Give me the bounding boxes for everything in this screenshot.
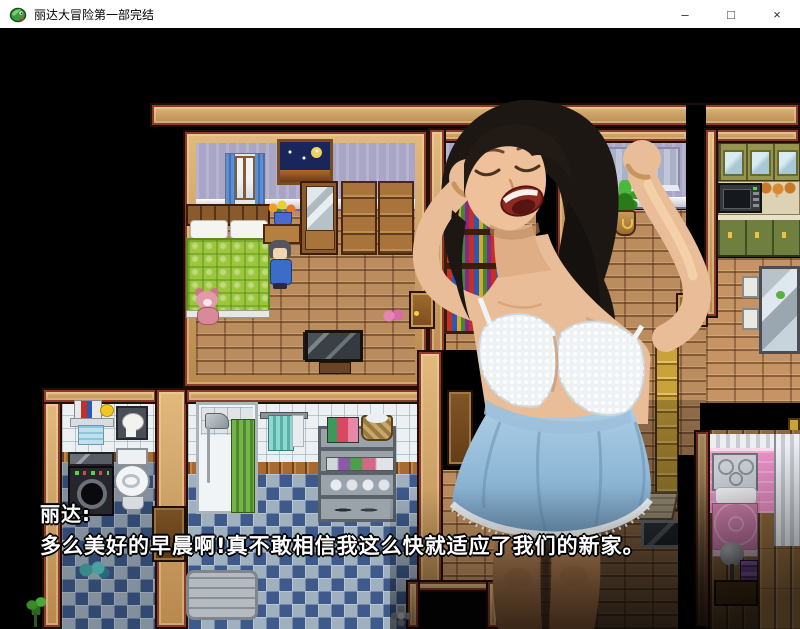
shelf-bottles — [74, 400, 102, 420]
npc-body — [270, 259, 292, 285]
shelf-items-row — [326, 457, 394, 471]
game-icon — [9, 5, 27, 23]
hanging-towel — [268, 415, 294, 451]
sprout-leaves — [26, 593, 46, 615]
window-controls: – □ × — [662, 0, 800, 28]
shower-hose — [207, 427, 210, 483]
detergent-bottles — [327, 417, 359, 443]
vanity-drawer — [305, 230, 335, 250]
app-window: 丽达大冒险第一部完结 – □ × — [0, 0, 800, 629]
towel-rack — [260, 408, 306, 454]
teddy-bear — [192, 288, 222, 324]
npc-sprite — [266, 240, 294, 290]
tv-stand — [319, 362, 351, 374]
hanging-towel-white — [292, 415, 304, 447]
folded-towels — [78, 425, 104, 445]
white-drape — [774, 434, 800, 546]
laundry-basket — [361, 415, 393, 441]
tv-screen — [305, 330, 363, 362]
night-sky-painting — [277, 139, 333, 185]
dialogue-line: 多么美好的早晨啊!真不敢相信我这么快就适应了我们的新家。 — [40, 530, 645, 560]
teddy-muzzle — [203, 299, 212, 306]
laundry-whites — [366, 413, 388, 423]
shelf-bowls-row — [326, 479, 392, 491]
laundry-pile — [78, 560, 112, 580]
dresser-chest-1 — [341, 181, 377, 255]
toilet-paper-holder — [116, 406, 148, 440]
window-cross — [243, 156, 246, 200]
bed-pillow — [190, 220, 228, 239]
toilet-seat — [122, 474, 140, 488]
window-title: 丽达大冒险第一部完结 — [34, 6, 154, 23]
tv — [305, 330, 363, 372]
title-bar[interactable]: 丽达大冒险第一部完结 – □ × — [0, 0, 800, 28]
vanity-mirror — [300, 181, 338, 255]
bedroom-window — [225, 153, 265, 209]
bath-mat — [186, 570, 258, 620]
dining-table — [759, 266, 800, 354]
washer-top — [68, 452, 114, 466]
rubber-duck — [100, 404, 114, 417]
washer-leds — [75, 471, 109, 475]
table-item — [776, 291, 785, 299]
right-fist — [623, 140, 661, 178]
sprout-stem — [34, 613, 37, 627]
paper-tail — [126, 426, 136, 437]
maximize-button[interactable]: □ — [708, 0, 754, 28]
mirror-glass — [306, 186, 334, 232]
toilet-bowl — [114, 464, 150, 498]
painting-stars — [284, 146, 324, 166]
sprout-sprite — [24, 593, 48, 627]
towel-shelf — [70, 400, 112, 446]
dialogue-speaker: 丽达: — [40, 498, 91, 527]
shower-stall — [196, 402, 258, 514]
npc-feet — [273, 283, 287, 289]
supply-shelf — [318, 426, 396, 522]
shelf-shoes — [329, 503, 385, 517]
toilet-base — [122, 496, 144, 510]
close-button[interactable]: × — [754, 0, 800, 28]
minimize-button[interactable]: – — [662, 0, 708, 28]
cabinet-mirror — [777, 150, 798, 176]
curtain-left — [226, 154, 235, 208]
shower-curtain — [231, 419, 255, 513]
npc-face — [273, 248, 287, 259]
game-viewport[interactable]: 丽达: 多么美好的早晨啊!真不敢相信我这么快就适应了我们的新家。 — [0, 28, 800, 629]
toilet — [112, 448, 152, 510]
teddy-body — [197, 307, 219, 325]
